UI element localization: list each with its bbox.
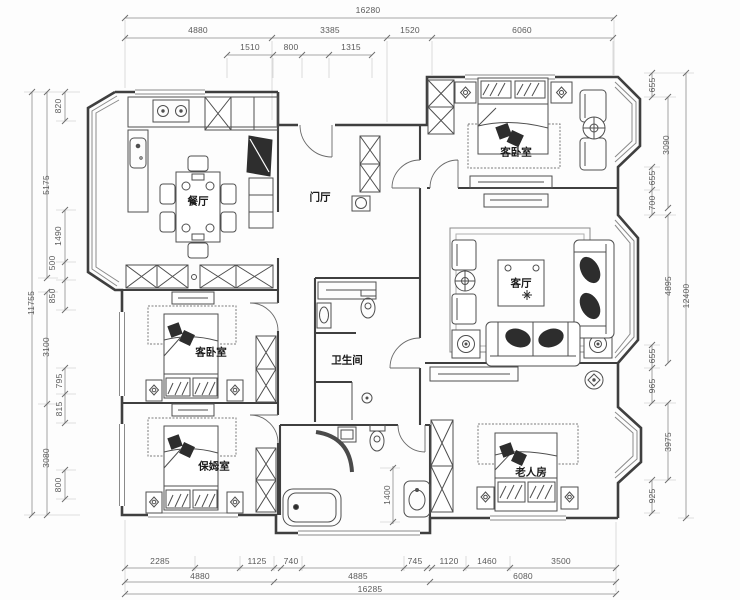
living-room-furniture [450,194,614,366]
elderly-room-furniture [430,367,603,511]
floor-plan-drawing [0,0,740,600]
nanny-room-furniture [146,404,243,513]
bathroom-upper-fixtures [317,282,376,420]
floor-plan: 16280 4880 3385 1520 6060 1510 800 1315 … [0,0,740,600]
dining-table [160,156,236,258]
guest-bedroom-left-furniture [146,292,243,401]
doors [250,125,458,452]
foyer-furniture [352,196,370,211]
guest-bedroom-top-furniture [455,78,606,188]
bathroom-lower-fixtures [283,425,430,526]
